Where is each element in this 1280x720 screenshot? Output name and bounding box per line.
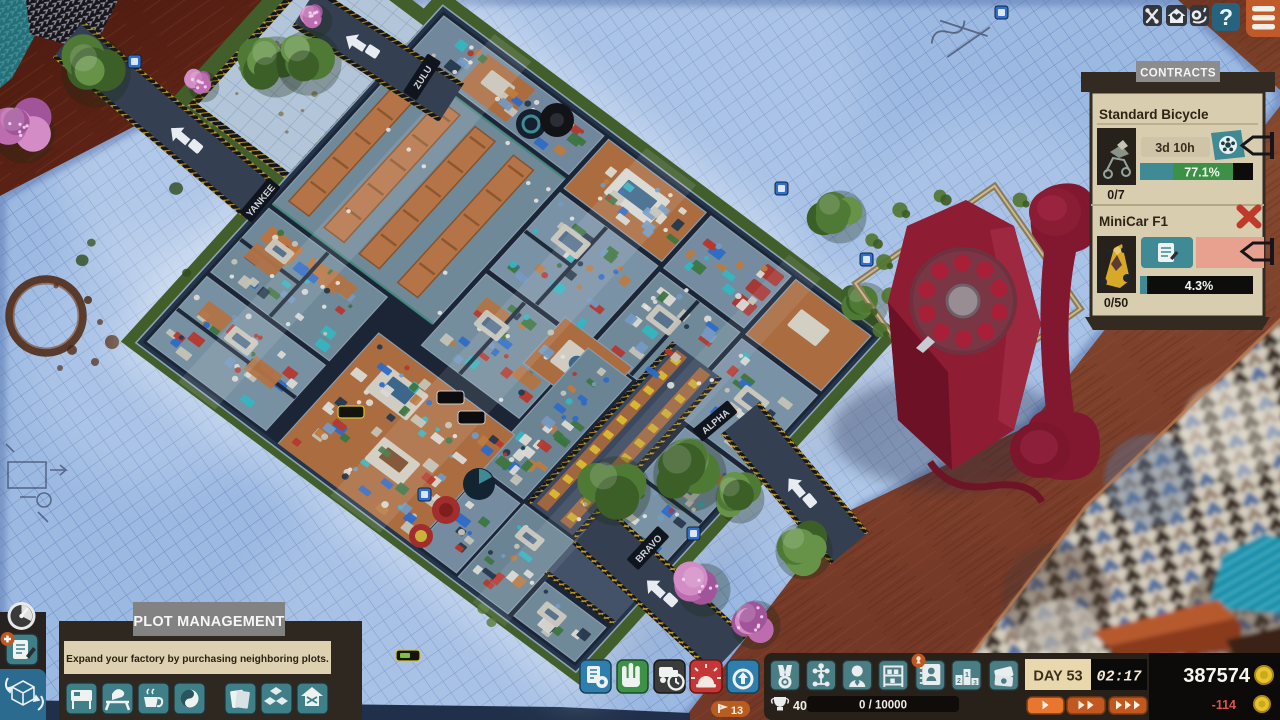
svg-text:MiniCar F1: MiniCar F1 xyxy=(1099,214,1169,229)
svg-text:3d 10h: 3d 10h xyxy=(1155,141,1195,155)
svg-text:02:17: 02:17 xyxy=(1096,669,1142,686)
svg-text:DAY 53: DAY 53 xyxy=(1033,669,1082,685)
svg-text:40: 40 xyxy=(793,699,807,713)
svg-text:77.1%: 77.1% xyxy=(1184,166,1219,180)
svg-text:0/50: 0/50 xyxy=(1104,296,1128,310)
svg-text:3: 3 xyxy=(973,680,977,687)
svg-text:0/7: 0/7 xyxy=(1107,188,1124,202)
svg-text:-114: -114 xyxy=(1212,698,1236,712)
svg-text:1: 1 xyxy=(965,670,969,679)
svg-text:?: ? xyxy=(1219,4,1233,30)
svg-text:CONTRACTS: CONTRACTS xyxy=(1140,68,1216,80)
svg-text:387574: 387574 xyxy=(1183,665,1251,687)
svg-text:13: 13 xyxy=(731,705,743,717)
svg-text:2: 2 xyxy=(957,678,961,685)
svg-text:Standard Bicycle: Standard Bicycle xyxy=(1099,107,1209,122)
svg-text:PLOT MANAGEMENT: PLOT MANAGEMENT xyxy=(133,614,284,630)
svg-text:4.3%: 4.3% xyxy=(1185,279,1214,293)
svg-text:Expand your factory by purchas: Expand your factory by purchasing neighb… xyxy=(66,654,329,665)
svg-text:0 / 10000: 0 / 10000 xyxy=(859,700,907,712)
